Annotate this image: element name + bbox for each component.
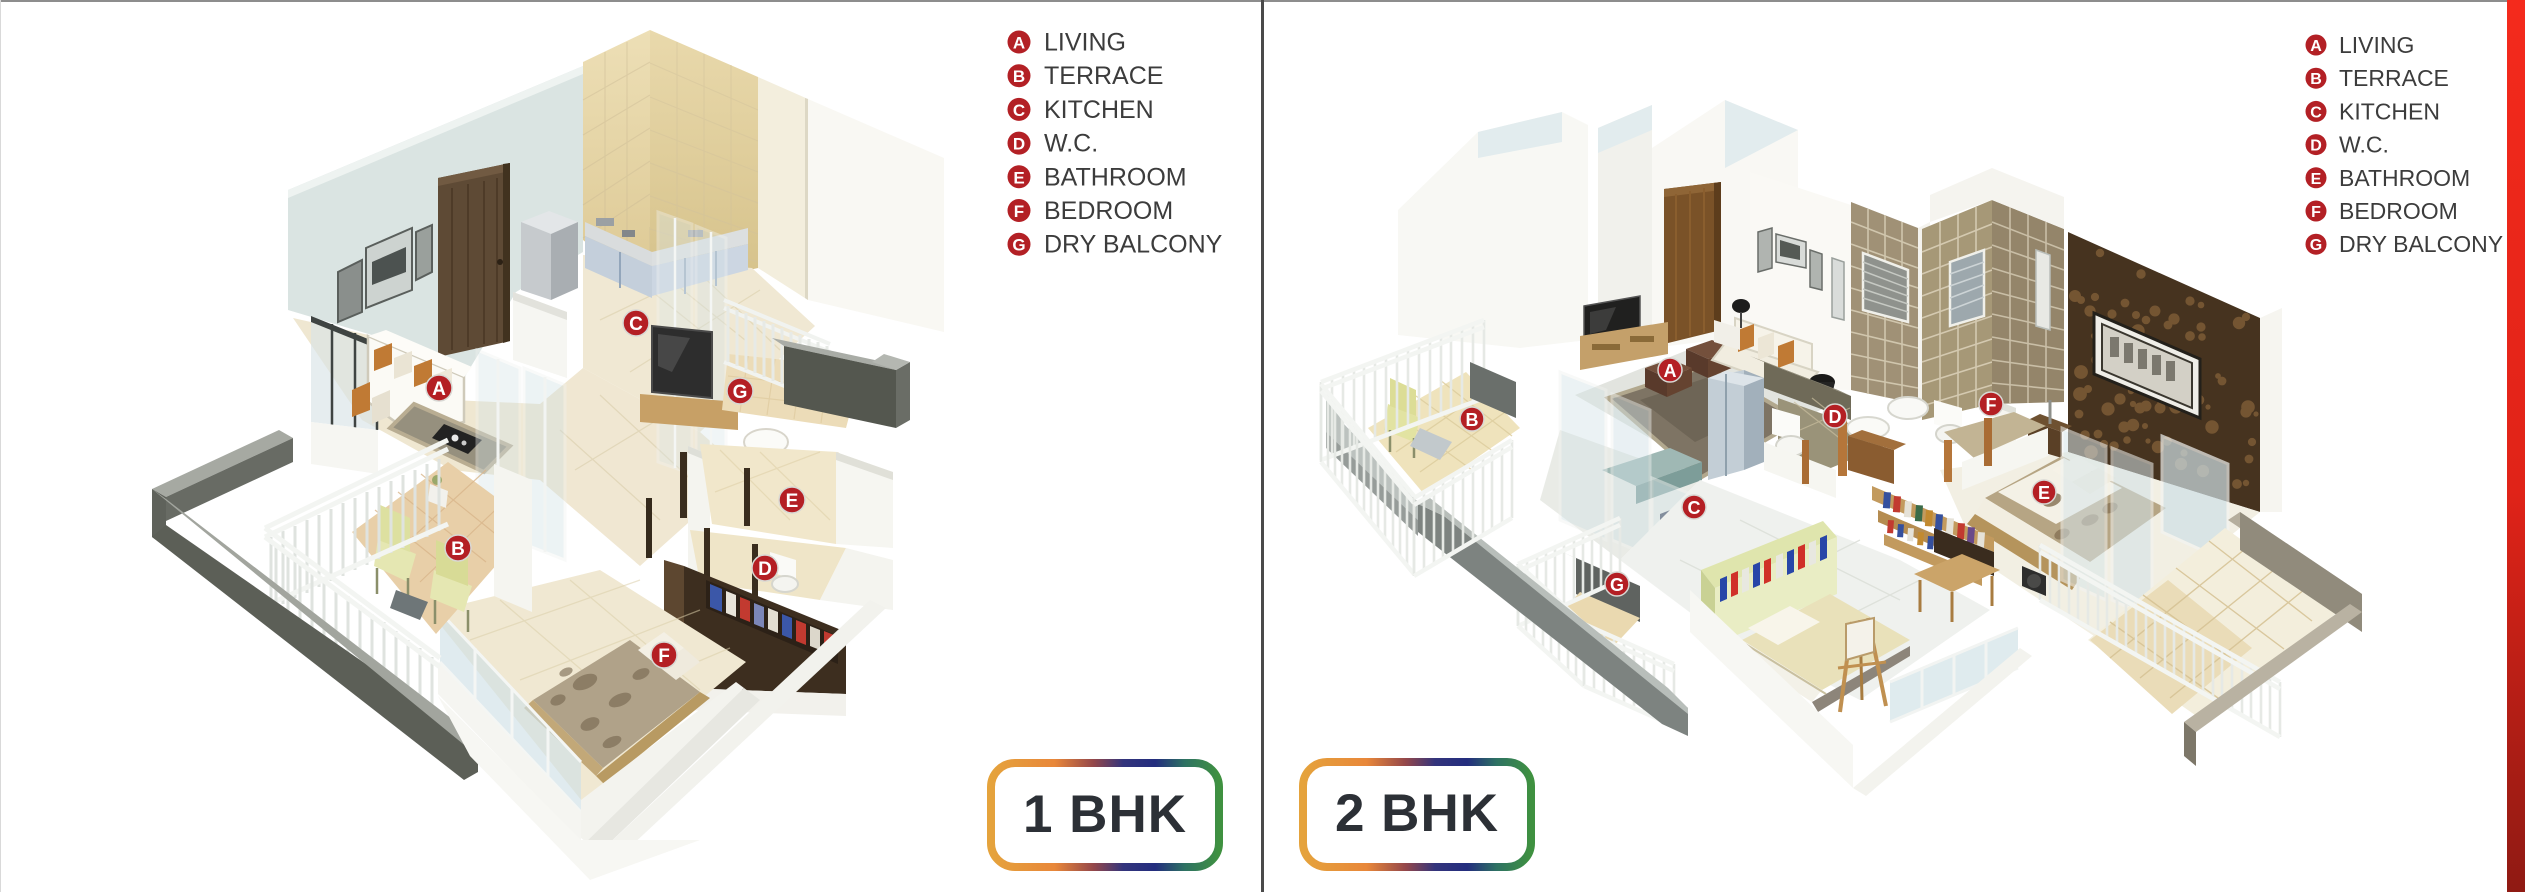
svg-text:F: F <box>1014 202 1024 221</box>
svg-text:E: E <box>786 491 799 512</box>
svg-text:2 BHK: 2 BHK <box>1335 784 1499 843</box>
svg-text:G: G <box>1012 236 1025 255</box>
svg-text:F: F <box>2311 204 2321 221</box>
svg-text:BATHROOM: BATHROOM <box>2339 165 2470 191</box>
svg-text:TERRACE: TERRACE <box>1044 62 1163 90</box>
svg-text:C: C <box>1013 101 1025 120</box>
svg-text:KITCHEN: KITCHEN <box>1044 96 1154 124</box>
svg-text:A: A <box>2310 38 2322 55</box>
svg-text:D: D <box>1829 407 1842 427</box>
svg-text:C: C <box>2310 104 2322 121</box>
svg-text:D: D <box>1013 135 1025 154</box>
svg-text:A: A <box>432 379 446 400</box>
svg-text:B: B <box>1466 410 1479 430</box>
svg-text:E: E <box>1013 168 1024 187</box>
svg-text:D: D <box>758 559 772 580</box>
svg-text:E: E <box>2311 171 2322 188</box>
svg-text:A: A <box>1013 34 1025 53</box>
svg-text:A: A <box>1664 361 1677 381</box>
svg-text:W.C.: W.C. <box>1044 130 1098 158</box>
svg-text:1 BHK: 1 BHK <box>1023 785 1187 844</box>
svg-text:BEDROOM: BEDROOM <box>2339 198 2458 224</box>
svg-text:BEDROOM: BEDROOM <box>1044 197 1173 225</box>
svg-text:E: E <box>2038 483 2050 503</box>
svg-text:F: F <box>1986 395 1997 415</box>
svg-text:G: G <box>733 382 748 403</box>
svg-text:LIVING: LIVING <box>2339 32 2414 58</box>
svg-text:BATHROOM: BATHROOM <box>1044 163 1187 191</box>
svg-text:KITCHEN: KITCHEN <box>2339 98 2440 124</box>
svg-text:LIVING: LIVING <box>1044 29 1126 57</box>
svg-text:G: G <box>2310 237 2322 254</box>
svg-text:W.C.: W.C. <box>2339 132 2389 158</box>
svg-text:TERRACE: TERRACE <box>2339 65 2449 91</box>
svg-text:B: B <box>1013 67 1025 86</box>
svg-text:B: B <box>2310 71 2322 88</box>
svg-text:DRY BALCONY: DRY BALCONY <box>1044 231 1223 259</box>
svg-text:C: C <box>1688 498 1701 518</box>
svg-text:G: G <box>1610 575 1624 595</box>
svg-text:D: D <box>2310 138 2322 155</box>
svg-text:B: B <box>451 539 465 560</box>
svg-text:C: C <box>629 314 643 335</box>
svg-text:DRY BALCONY: DRY BALCONY <box>2339 231 2503 257</box>
svg-text:F: F <box>658 646 670 667</box>
